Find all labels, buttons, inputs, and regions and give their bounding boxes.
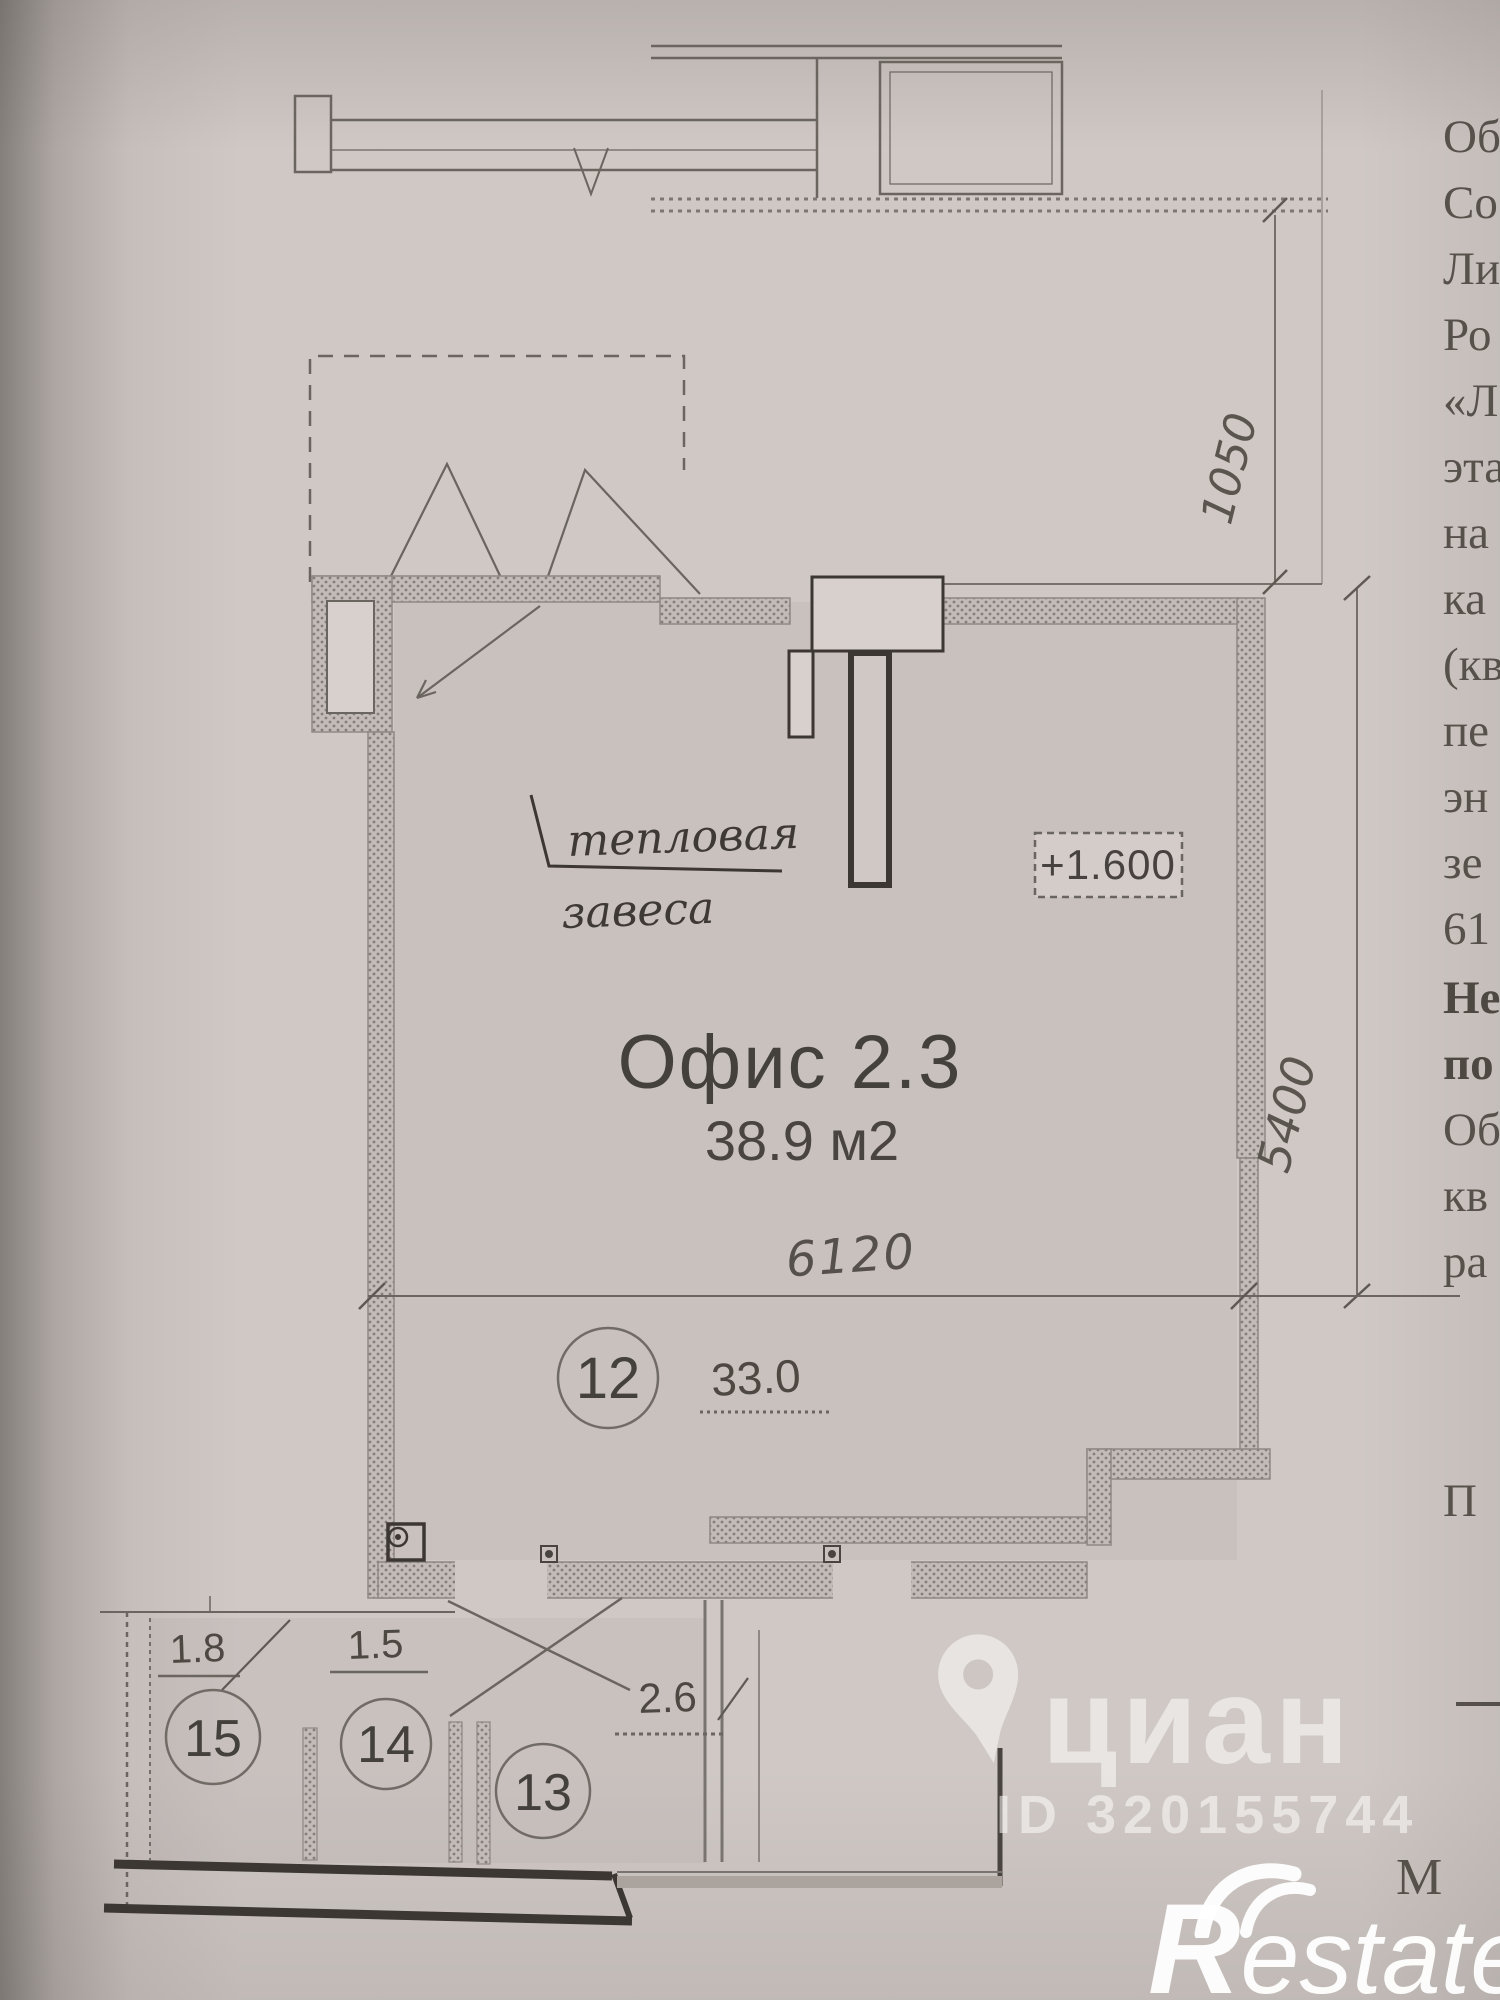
doc-text-line: на	[1443, 510, 1489, 557]
doc-text-line: эта	[1443, 444, 1500, 491]
doc-rule-line	[1456, 1702, 1500, 1706]
structural-column	[851, 653, 889, 885]
doc-text-line: (кв	[1443, 642, 1500, 689]
doc-text-line: ка	[1443, 576, 1486, 623]
doc-text-line: Об	[1443, 1107, 1500, 1154]
elevation-mark-label: +1.600	[1040, 841, 1176, 888]
photographed-floorplan-page: 1050 5400 6120 тепловая завеса +1.600	[0, 0, 1500, 2000]
doc-text-line: ра	[1443, 1239, 1487, 1286]
restate-logo-text: estate	[1240, 1898, 1500, 2000]
doc-text-line: по	[1443, 1041, 1494, 1088]
doc-text-line: «Л	[1443, 378, 1498, 425]
doc-text-line: кв	[1443, 1173, 1488, 1220]
location-pin-icon	[918, 1622, 1058, 1782]
dashed-contour	[310, 356, 684, 582]
wall-junction	[812, 577, 943, 651]
thermal-curtain-line2: завеса	[561, 883, 715, 939]
doc-text-line: зе	[1443, 840, 1482, 887]
door-opening	[455, 1560, 547, 1600]
svg-text:15: 15	[184, 1710, 242, 1768]
room-12-area: 33.0	[710, 1349, 802, 1406]
elevation-mark: +1.600	[1035, 833, 1182, 897]
dimension-1050: 1050	[1192, 198, 1287, 594]
restate-logo-r: R	[1148, 1878, 1240, 2000]
dim-6120-label: 6120	[784, 1224, 918, 1289]
doc-text-line: эн	[1443, 774, 1488, 821]
wall-niche	[327, 601, 374, 713]
doc-text-line: 61	[1443, 906, 1490, 953]
annex-bottom-walls	[104, 1864, 1002, 1921]
thermal-curtain-line1: тепловая	[567, 808, 800, 867]
balcony-railing-left	[295, 58, 817, 198]
doc-text-line: П	[1443, 1478, 1477, 1525]
cian-id-watermark: ID 320155744	[996, 1788, 1419, 1842]
svg-text:1.8: 1.8	[169, 1626, 226, 1672]
doc-text-line: Об	[1443, 114, 1500, 161]
svg-text:1.5: 1.5	[347, 1622, 404, 1668]
door-opening	[833, 1560, 911, 1600]
dim-1050-label: 1050	[1192, 408, 1269, 529]
svg-text:2.6: 2.6	[637, 1673, 697, 1722]
office-title: Офис 2.3	[618, 1020, 963, 1105]
svg-text:14: 14	[357, 1716, 415, 1774]
cian-watermark: циан	[1042, 1660, 1354, 1782]
doc-text-line: пе	[1443, 708, 1489, 755]
doc-text-line: Ро	[1443, 312, 1491, 359]
svg-text:13: 13	[514, 1764, 572, 1822]
office-area: 38.9 м2	[705, 1109, 899, 1172]
doc-text-line: Не	[1443, 975, 1500, 1022]
wall-junction-notch	[789, 651, 813, 737]
doc-text-line: Со	[1443, 180, 1498, 227]
svg-text:12: 12	[576, 1346, 641, 1411]
doc-text-line: Ли	[1443, 246, 1500, 293]
restate-logo: Restate	[1148, 1886, 1500, 2000]
